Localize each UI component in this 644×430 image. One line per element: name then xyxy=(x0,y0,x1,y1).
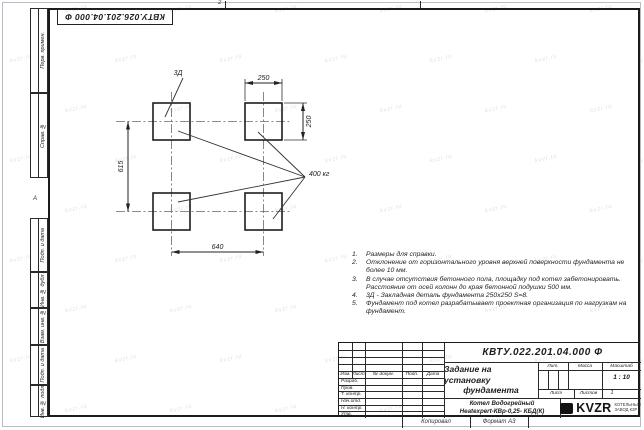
sheets-label: Листов xyxy=(575,391,602,397)
drawing-sheet: kvzr.rukvzr.rukvzr.rukvzr.rukvzr.rukvzr.… xyxy=(0,0,644,430)
stamp-divider xyxy=(38,9,39,92)
foundation-plan-drawing: 3Д 250 250 615 640 400 кг xyxy=(50,30,342,280)
stamp-inv-dubl: Инв. № дубл. xyxy=(30,272,48,308)
dim-250-top-label: 250 xyxy=(257,75,270,82)
note-item: 1.Размеры для справки. xyxy=(352,251,635,259)
extension-lines xyxy=(245,79,307,140)
grid-line xyxy=(339,364,444,365)
grid-line xyxy=(339,357,444,358)
dimension-lines xyxy=(128,83,303,252)
sheet-label: Лист xyxy=(538,391,574,397)
grid-line xyxy=(422,343,423,418)
grid-line xyxy=(528,417,529,428)
note-item: 5.Фундамент под котел разрабатывает прое… xyxy=(352,300,635,316)
note-item: 2.Отклонение от горизонтального уровня в… xyxy=(352,259,635,275)
stamp-divider xyxy=(38,94,39,177)
col-list: Лист xyxy=(352,372,365,378)
zone-tick xyxy=(420,1,421,8)
grid-line xyxy=(538,389,641,390)
inverted-designation-text: КВТУ.026.201.04.000 Ф xyxy=(65,12,165,22)
stamp-inv-podl: Инв. № подл. xyxy=(30,385,48,417)
kvzr-logo: KVZR КОТЕЛЬНЫЙ ЗАВОД КЗР xyxy=(560,398,641,418)
notes-block: 1.Размеры для справки. 2.Отклонение от г… xyxy=(352,251,635,317)
kopiroval-label: Копировал xyxy=(402,419,470,425)
drawing-title: Задание на установку фундамента xyxy=(444,362,538,398)
stamp-podp-data-1: Подп. и дата xyxy=(30,218,48,272)
row-razrab: Разраб. xyxy=(341,379,365,385)
mass-label: Масса xyxy=(568,364,602,370)
row-nkontr: Н. контр. xyxy=(341,406,365,412)
scale-value: 1 : 10 xyxy=(602,374,641,381)
row-utv: Утв. xyxy=(341,412,365,418)
document-number: КВТУ.022.201.04.000 Ф xyxy=(444,343,641,362)
title-block: Изм. Лист № докум. Подп. Дата Разраб. Пр… xyxy=(338,342,640,417)
grid-line xyxy=(339,350,444,351)
scale-label: Масштаб xyxy=(602,364,641,370)
kvzr-logo-subtext: КОТЕЛЬНЫЙ ЗАВОД КЗР xyxy=(614,403,640,413)
dim-615-left-label: 615 xyxy=(118,161,125,173)
stamp-divider xyxy=(38,346,39,384)
sheets-value: 1 xyxy=(605,391,619,397)
row-tkontr: Т. контр. xyxy=(341,392,365,398)
zone-number-top: 2 xyxy=(218,0,221,6)
load-400kg-label: 400 кг xyxy=(309,171,330,178)
grid-line xyxy=(402,343,403,418)
grid-line xyxy=(365,343,366,418)
col-docnum: № докум. xyxy=(365,372,402,378)
stamp-podp-data-2: Подп. и дата xyxy=(30,345,48,385)
foundation-pads xyxy=(153,103,282,230)
stamp-perv-primen: Перв. примен. xyxy=(30,8,48,93)
zone-tick xyxy=(225,1,226,8)
stamp-divider xyxy=(38,386,39,416)
grid-line xyxy=(538,370,641,371)
callout-3d-label: 3Д xyxy=(174,70,183,77)
note-item: 4.3Д - Закладная деталь фундамента 250х2… xyxy=(352,292,635,300)
kvzr-logo-text: KVZR xyxy=(576,401,611,415)
row-prov: Пров. xyxy=(341,386,365,392)
product-name: Котел Водогрейный Heatexpert-КВр-0,25- К… xyxy=(444,398,560,418)
grid-line xyxy=(548,370,549,389)
lit-label: Лит. xyxy=(538,364,568,370)
centerlines xyxy=(116,92,290,256)
format-label: Формат А3 xyxy=(470,419,528,425)
col-podp: Подп. xyxy=(402,372,422,378)
grid-line xyxy=(558,370,559,389)
zone-letter-left: А xyxy=(33,196,37,202)
stamp-sprav-no: Справ. № xyxy=(30,93,48,178)
inverted-designation-box: КВТУ.026.201.04.000 Ф xyxy=(57,9,173,25)
stamp-divider xyxy=(38,219,39,271)
dim-640-bottom-label: 640 xyxy=(212,244,224,251)
stamp-vzam-inv: Взам. инв. № xyxy=(30,308,48,345)
col-data: Дата xyxy=(422,372,444,378)
kvzr-logo-mark-icon xyxy=(560,403,573,414)
dim-250-right-label: 250 xyxy=(306,116,313,129)
stamp-divider xyxy=(38,309,39,344)
note-item: 3.В случае отсутствия бетонного пола, пл… xyxy=(352,276,635,292)
leader-lines xyxy=(165,78,305,219)
stamp-divider xyxy=(38,273,39,307)
row-nachotd: Нач.отд. xyxy=(341,399,365,405)
col-izm: Изм. xyxy=(339,372,352,378)
